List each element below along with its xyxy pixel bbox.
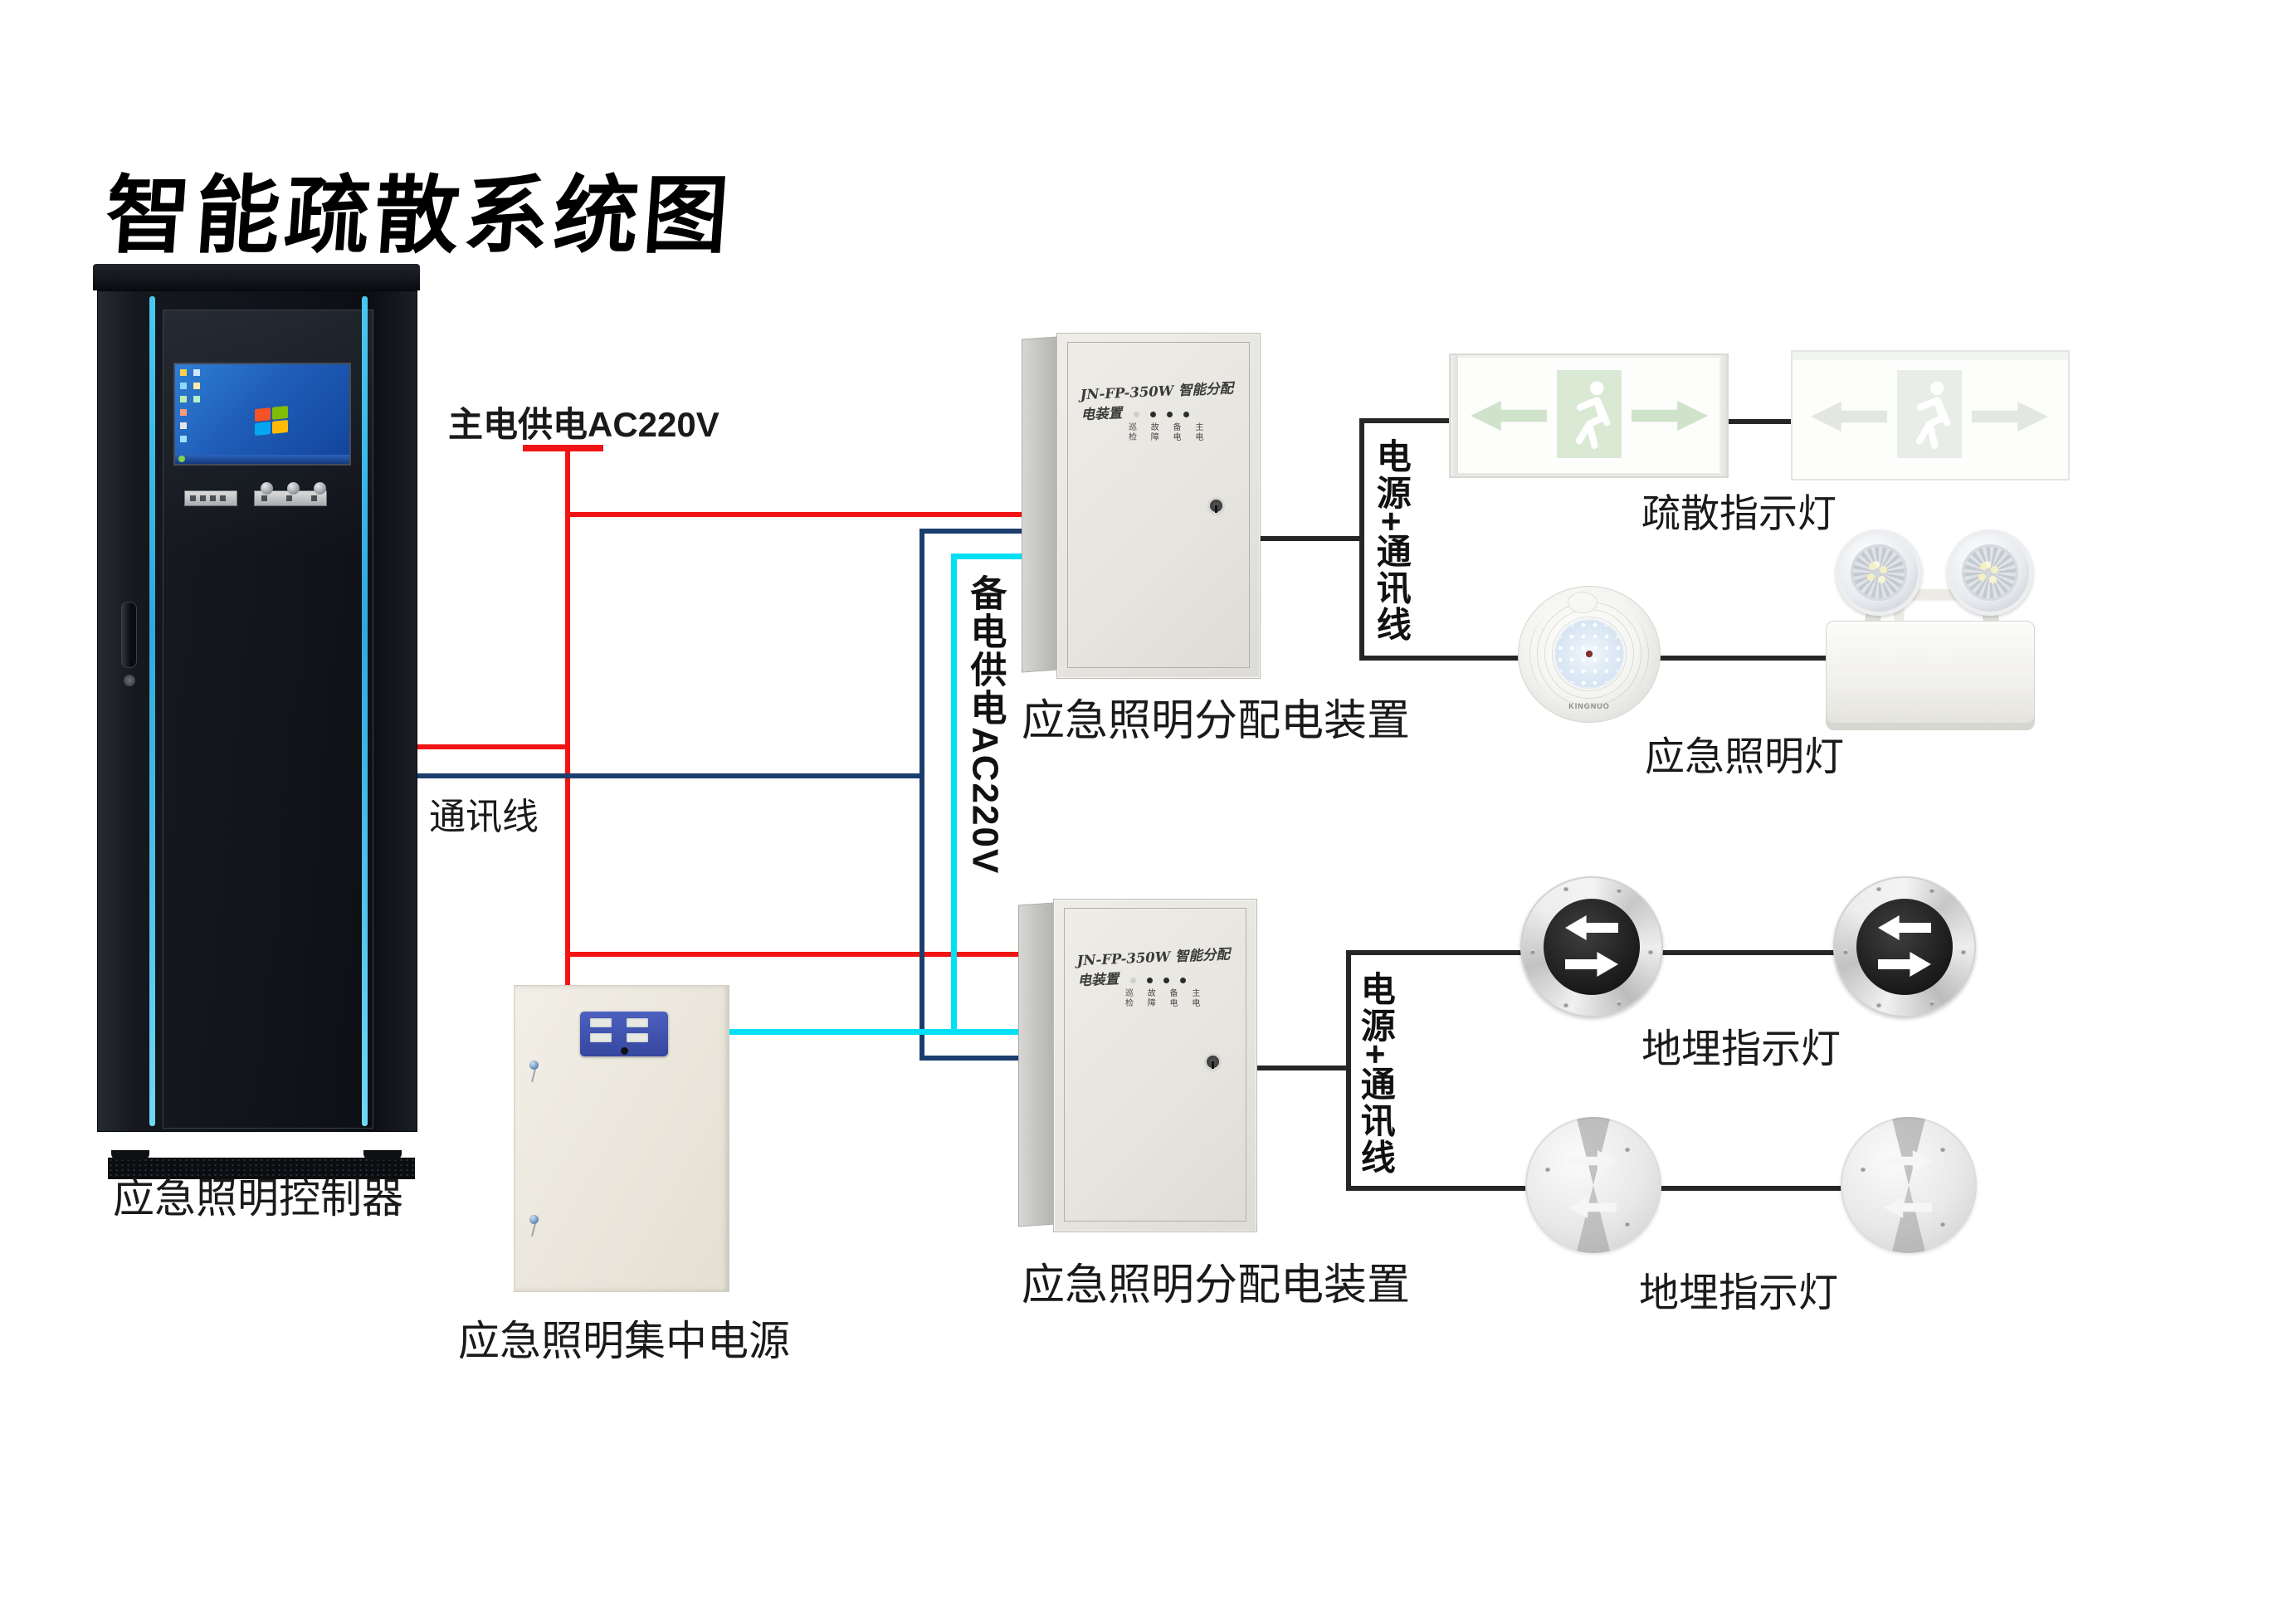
cabinet-knob (314, 482, 326, 495)
lamp-reflector (1851, 544, 1907, 601)
wire-red-vertical (565, 448, 570, 985)
light-face (1544, 899, 1640, 995)
ground-light-bottom-left (1525, 1117, 1661, 1253)
wire-navy-vertical (919, 529, 924, 1061)
wire-red-to-dist1 (567, 512, 1025, 517)
exit-door-pictogram (1552, 365, 1627, 463)
twin-light-head-left (1836, 529, 1922, 616)
main-power-label: 主电供电AC220V (448, 397, 719, 447)
wire-black-dist1-out (1259, 536, 1364, 541)
distribution-box-1: JN-FP-350W 智能分配电装置 巡 故 备 主 检 障 电 电 (1022, 333, 1259, 677)
distribution-box-front: JN-FP-350W 智能分配电装置 巡 故 备 主 检 障 电 电 (1053, 899, 1257, 1232)
wire-black-to-groundlight-top (1346, 950, 1525, 955)
cabinet-door-lock (124, 675, 135, 686)
power-comm-label-2: 电源+通讯线 (1356, 971, 1394, 1212)
evacuation-system-diagram: 智能疏散系统图 (0, 0, 2278, 1624)
lamp-reflector (1962, 544, 2018, 601)
arrow-right-icon (1878, 952, 1931, 977)
wire-black-bracket1 (1359, 418, 1364, 661)
power-comm-label-1: 电源+通讯线 (1372, 438, 1410, 679)
arrow-left-icon (1878, 915, 1931, 940)
exit-sign-1 (1449, 354, 1729, 478)
exit-arrow-right-icon (1972, 402, 2048, 432)
desktop-icons (180, 369, 187, 376)
exit-arrow-left-icon (1811, 402, 1887, 432)
door-keyhole (1207, 1056, 1219, 1068)
wire-navy-to-dist2 (919, 1056, 1022, 1061)
exit-sign-2 (1791, 350, 2070, 480)
cabinet-accent-strip-left (149, 296, 155, 1126)
cabinet-control-panel-left (184, 490, 237, 506)
wire-black-bracket2 (1346, 950, 1351, 1191)
wire-black-groundbottom-link (1658, 1186, 1844, 1191)
door-keyhole (1210, 500, 1222, 512)
wire-cyan-powerbox-to-dist2 (728, 1029, 1022, 1035)
wire-navy-to-dist1 (919, 529, 1025, 534)
wire-cyan-to-dist1 (951, 554, 1025, 559)
status-led-row (1134, 412, 1192, 418)
door-screw (529, 1061, 539, 1070)
central-power-label: 应急照明集中电源 (458, 1308, 790, 1368)
cabinet-body (97, 290, 417, 1132)
start-orb-icon (178, 456, 185, 462)
led-labels-row2: 检 障 电 电 (1125, 996, 1200, 1008)
ground-light-top-left (1520, 876, 1663, 1017)
backup-power-label: 备电供电AC220V (964, 574, 1004, 989)
controller-label: 应急照明控制器 (113, 1165, 403, 1225)
ground-light-bottom-label: 地埋指示灯 (1639, 1260, 1838, 1318)
power-supply-display-panel (580, 1012, 668, 1056)
controller-cabinet (93, 264, 420, 1160)
central-power-supply (514, 985, 729, 1292)
distribution-box-side (1022, 336, 1058, 672)
emergency-light-label: 应急照明灯 (1645, 724, 1844, 782)
twin-light-base (1826, 621, 2035, 730)
distribution-box-1-label: 应急照明分配电装置 (1022, 685, 1410, 748)
cabinet-accent-strip-right (362, 296, 368, 1126)
distribution-box-front: JN-FP-350W 智能分配电装置 巡 故 备 主 检 障 电 电 (1056, 333, 1261, 679)
exit-arrow-left-icon (1471, 401, 1547, 431)
metal-wedges (1525, 1117, 1661, 1253)
arrow-right-icon (1565, 952, 1618, 977)
light-face (1856, 899, 1953, 995)
exit-door-pictogram (1892, 365, 1967, 463)
taskbar (175, 455, 349, 464)
door-screw (529, 1215, 539, 1224)
cabinet-top-cap (93, 264, 420, 290)
ground-light-bottom-right (1841, 1117, 1977, 1253)
running-man-icon (1563, 377, 1615, 453)
cabinet-knob (287, 482, 300, 495)
wire-black-roundlight-twin-link (1656, 656, 1831, 661)
metal-wedges (1841, 1117, 1977, 1253)
indicator-dot (1586, 651, 1593, 657)
brand-text: KINGNUO (1518, 702, 1661, 710)
cabinet-knob (261, 482, 273, 495)
cabinet-foot (363, 1150, 402, 1160)
running-man-icon (1904, 377, 1955, 453)
exit-sign-label: 疏散指示灯 (1641, 481, 1837, 539)
distribution-box-2-label: 应急照明分配电装置 (1022, 1250, 1410, 1312)
cabinet-monitor (173, 363, 351, 466)
ground-light-top-label: 地埋指示灯 (1641, 1016, 1841, 1074)
sign-end-cap (1451, 355, 1458, 476)
wire-navy-from-cabinet (415, 773, 924, 778)
exit-arrow-right-icon (1632, 401, 1708, 431)
status-led-row (1130, 978, 1188, 984)
windows-logo-icon (255, 406, 288, 436)
wire-red-from-cabinet (415, 744, 569, 749)
distribution-box-2: JN-FP-350W 智能分配电装置 巡 故 备 主 检 障 电 电 (1018, 899, 1256, 1231)
arrow-left-icon (1565, 915, 1618, 940)
comm-line-label: 通讯线 (429, 787, 539, 840)
distribution-box-side (1018, 902, 1055, 1227)
led-labels-row2: 检 障 电 电 (1129, 430, 1203, 442)
panel-knob (621, 1047, 628, 1055)
page-title: 智能疏散系统图 (102, 148, 738, 270)
wire-black-to-exitsign (1359, 418, 1452, 423)
cabinet-foot (111, 1150, 149, 1160)
ceiling-emergency-light: KINGNUO (1518, 586, 1661, 723)
ground-light-top-right (1833, 876, 1976, 1017)
sign-end-cap (1719, 355, 1727, 476)
led-cluster (1869, 563, 1876, 570)
wire-black-exitsign-link (1723, 419, 1793, 424)
wire-black-groundtop-link (1660, 950, 1837, 955)
sensor-window (1568, 592, 1598, 613)
led-cluster (1980, 563, 1988, 570)
twin-light-head-right (1947, 529, 2033, 616)
cabinet-door-handle (121, 602, 137, 668)
wire-cyan-vertical (951, 554, 957, 1035)
